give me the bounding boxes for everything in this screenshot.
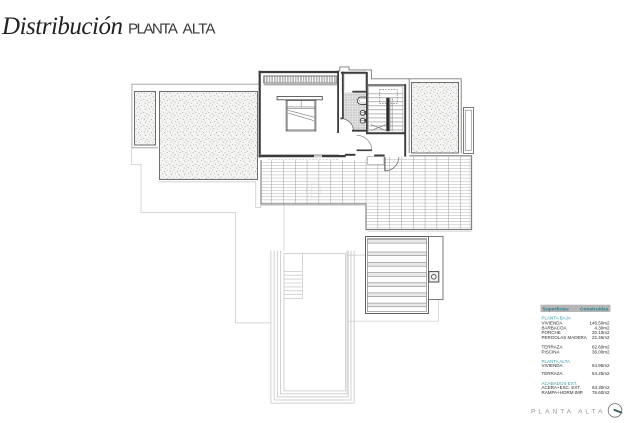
svg-text:ALTA: ALTA	[183, 21, 217, 38]
svg-text:54.95m2: 54.95m2	[592, 363, 610, 368]
svg-text:22.46m2: 22.46m2	[592, 335, 610, 340]
svg-text:Distribución: Distribución	[1, 13, 123, 40]
svg-text:PLANTA ALTA: PLANTA ALTA	[531, 409, 605, 416]
svg-text:TERRAZA: TERRAZA	[542, 371, 563, 376]
svg-text:PLANTA: PLANTA	[128, 21, 179, 38]
svg-text:54.25m2: 54.25m2	[592, 371, 610, 376]
svg-text:PERGOLAS MADERA: PERGOLAS MADERA	[542, 335, 587, 340]
svg-text:Superficies: Superficies	[543, 306, 570, 312]
svg-text:VIVIENDA: VIVIENDA	[542, 363, 563, 368]
svg-text:36.00m2: 36.00m2	[592, 350, 610, 355]
svg-text:PISCINA: PISCINA	[542, 350, 560, 355]
svg-text:Construidas: Construidas	[580, 306, 609, 312]
svg-text:RAMPA+HORM.IMP.: RAMPA+HORM.IMP.	[542, 390, 584, 395]
svg-text:76.60m2: 76.60m2	[592, 390, 610, 395]
